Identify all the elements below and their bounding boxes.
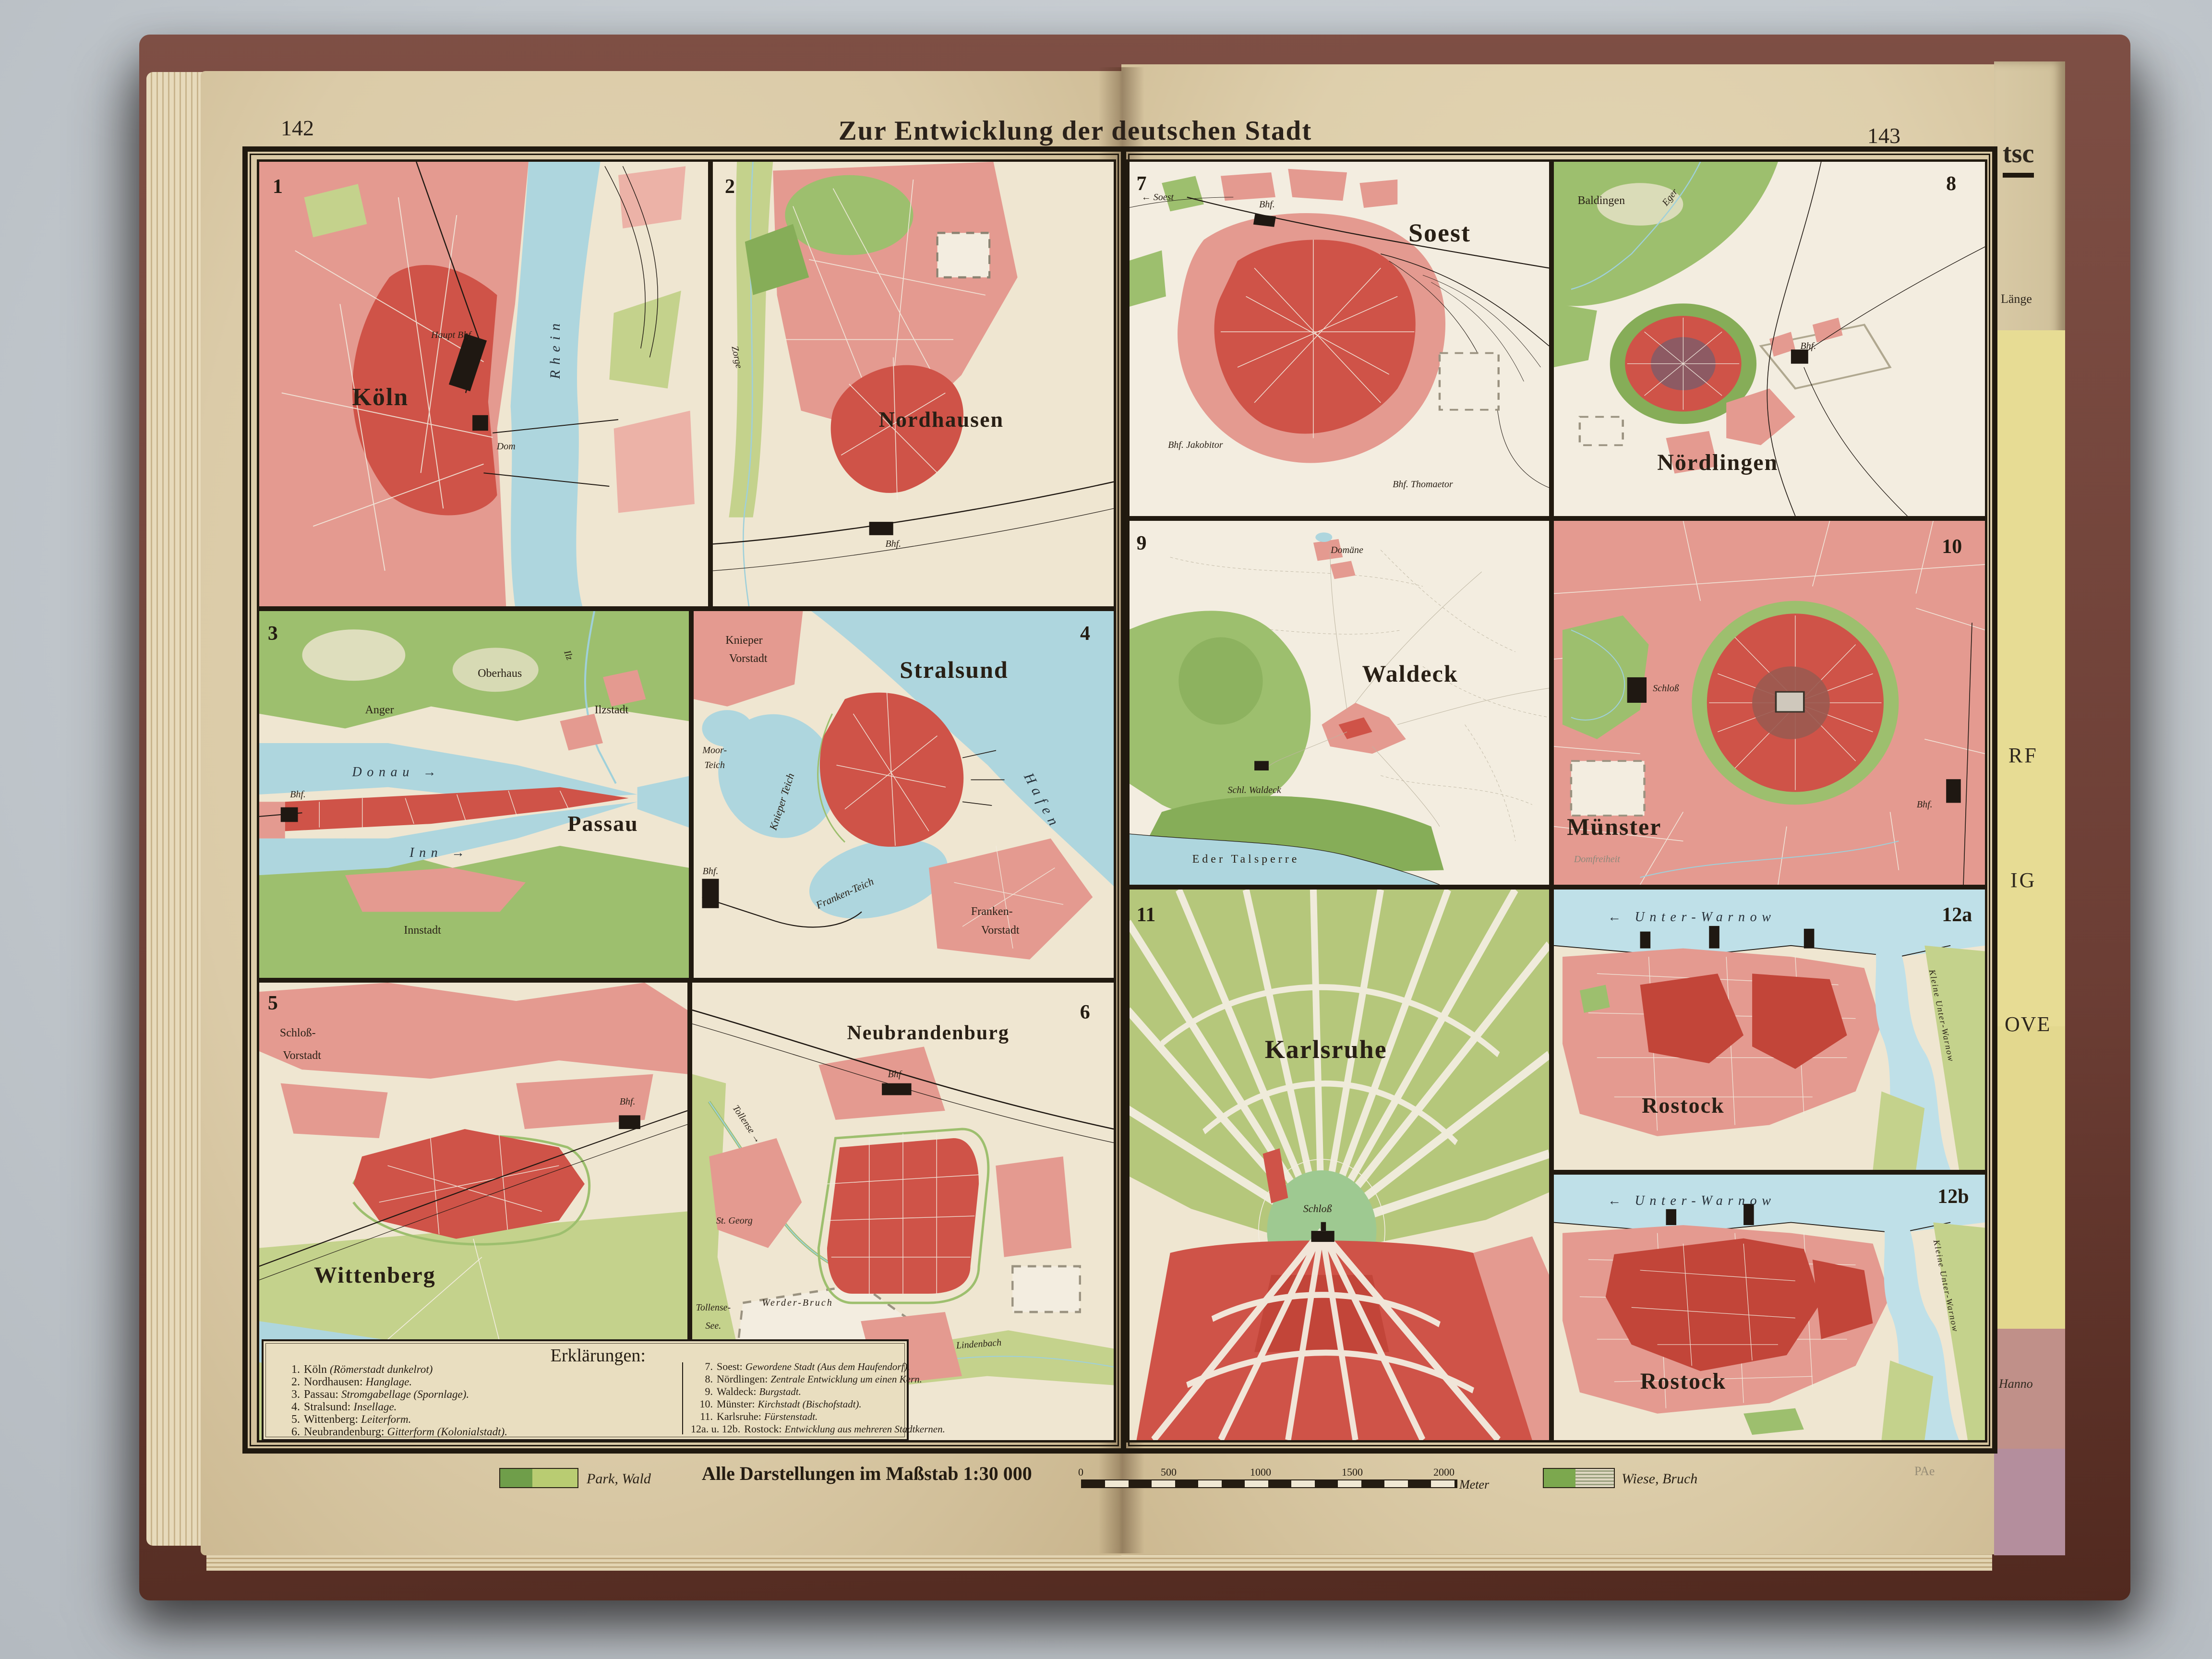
legend-item: 1.Köln(Römerstadt dunkelrot) (278, 1363, 507, 1376)
stralsund-bhf-label: Bhf. (703, 866, 719, 876)
panel-number: 2 (725, 175, 735, 198)
soest-map-art (1128, 162, 1549, 516)
legend-column-left: 1.Köln(Römerstadt dunkelrot) 2.Nordhause… (278, 1363, 507, 1438)
next-page-rf-fragment: RF (2008, 743, 2038, 768)
legend-item: 3.Passau:Stromgabellage (Spornlage). (278, 1388, 507, 1401)
donau-river-label: Donau → (352, 766, 442, 779)
panel-muenster: 10 Schloß Münster Domfreiheit Bhf. (1551, 518, 1987, 887)
anger-label: Anger (365, 704, 394, 716)
karlsruhe-city-label: Karlsruhe (1265, 1036, 1387, 1062)
legend-heading: Erklärungen: (551, 1345, 646, 1366)
panel-number: 1 (273, 175, 283, 198)
next-page-hanno-fragment: Hanno (1999, 1377, 2033, 1391)
passau-city-label: Passau (567, 813, 638, 835)
schloss-vorstadt-label-2: Vorstadt (283, 1050, 321, 1061)
panel-passau: 3 Oberhaus Anger Ilzstadt Ilz Donau → In… (257, 609, 691, 980)
panel-soest: 7 Soest ← Soest Bhf. Bhf. Thomaetor Bhf.… (1126, 159, 1551, 518)
scale-tick-1000: 1000 (1250, 1466, 1271, 1479)
panel-number: 5 (268, 992, 278, 1015)
stralsund-bahnhof-icon (702, 879, 719, 908)
scale-bar (1081, 1479, 1457, 1488)
page-number-right: 143 (1867, 123, 1900, 148)
page-title: Zur Entwicklung der deutschen Stadt (797, 115, 1354, 146)
next-page-ove-fragment: OVE (2005, 1012, 2051, 1036)
printer-mark: PAe (1914, 1464, 1935, 1479)
inn-river-label: Inn → (409, 846, 470, 860)
noerdlingen-bhf-label: Bhf. (1800, 341, 1816, 351)
legend-divider (682, 1362, 683, 1434)
panel-number: 9 (1137, 532, 1147, 555)
nordhausen-bahnhof-icon (869, 522, 893, 535)
scale-tick-1500: 1500 (1342, 1466, 1363, 1479)
knieper-vorstadt-label-1: Knieper (725, 635, 762, 646)
bhf-thomaetor-label: Bhf. Thomaetor (1393, 480, 1453, 489)
wiese-bruch-swatch (1543, 1468, 1615, 1488)
franken-vorstadt-label-2: Vorstadt (981, 925, 1020, 936)
moor-teich-label-2: Teich (704, 760, 725, 770)
panel-number: 3 (268, 622, 278, 645)
park-swatch-dark-cell (500, 1469, 532, 1487)
muenster-schloss-label: Schloß (1653, 684, 1679, 693)
neubrandenburg-city-label: Neubrandenburg (847, 1023, 1009, 1043)
waldeck-city-label: Waldeck (1362, 661, 1458, 685)
oberhaus-label: Oberhaus (478, 668, 522, 679)
innstadt-label: Innstadt (404, 925, 441, 936)
stralsund-city-label: Stralsund (900, 658, 1008, 682)
schloss-vorstadt-label-1: Schloß- (280, 1027, 316, 1039)
muenster-dom-icon (1776, 692, 1803, 712)
domaene-label: Domäne (1331, 545, 1363, 555)
legend-item: 4.Stralsund:Insellage. (278, 1401, 507, 1413)
rostock-city-label-12b: Rostock (1640, 1370, 1726, 1393)
page-edge-stack-bottom (206, 1554, 1992, 1571)
soest-bhf-label: Bhf. (1259, 200, 1275, 209)
muenster-schloss-icon (1627, 677, 1647, 703)
noerdlingen-bahnhof-icon (1791, 349, 1808, 364)
ilzstadt-label: Ilzstadt (595, 704, 629, 716)
park-swatch-light-cell (532, 1469, 577, 1487)
tollense-see-label-2: See. (706, 1321, 721, 1331)
franken-vorstadt-label-1: Franken- (971, 906, 1013, 917)
moor-teich-label-1: Moor- (702, 745, 727, 755)
nordhausen-city-label: Nordhausen (879, 409, 1004, 431)
next-page-laenge-fragment: Länge (2001, 292, 2032, 306)
koeln-dom-icon (472, 415, 488, 431)
next-page-ig-fragment: IG (2010, 868, 2036, 892)
koeln-hauptbhf-label: Haupt Bhf. (431, 330, 473, 340)
page-edge-stack-left (146, 72, 203, 1546)
scale-tick-2000: 2000 (1433, 1466, 1455, 1479)
koeln-dom-label: Dom (497, 442, 516, 451)
karlsruhe-schloss-tower-icon (1321, 1222, 1326, 1231)
waldeck-map-art (1128, 521, 1549, 885)
baldingen-label: Baldingen (1577, 195, 1625, 206)
legend-column-right: 7.Soest:Gewordene Stadt (Aus dem Haufend… (691, 1360, 945, 1435)
muenster-bahnhof-icon (1946, 779, 1961, 803)
schloss-waldeck-icon (1254, 761, 1269, 770)
passau-map-art (259, 611, 689, 978)
koeln-map-art (259, 162, 708, 606)
next-page-sliver: tsc Länge RF IG OVE Hanno (1994, 61, 2065, 1555)
rostock-12a-map-art (1554, 890, 1985, 1170)
panel-number: 6 (1080, 1001, 1090, 1024)
rostock-city-label-12a: Rostock (1642, 1094, 1724, 1117)
wiese-swatch-green-cell (1544, 1469, 1575, 1487)
panel-number: 12b (1937, 1185, 1969, 1208)
nordhausen-bhf-label: Bhf. (885, 539, 901, 549)
rhein-river-label: Rhein (548, 318, 563, 379)
soest-city-label: Soest (1408, 220, 1471, 246)
bhf-jakobitor-label: Bhf. Jakobitor (1168, 440, 1223, 450)
wittenberg-city-label: Wittenberg (314, 1264, 436, 1287)
neubrandenburg-bhf-label: Bhf (888, 1070, 902, 1079)
scale-tick-500: 500 (1161, 1466, 1177, 1479)
panel-noerdlingen: 8 Baldingen Eger Bhf. Nördlingen (1551, 159, 1987, 518)
legend-item: 5.Wittenberg:Leiterform. (278, 1413, 507, 1426)
domfreiheit-label: Domfreiheit (1574, 854, 1620, 864)
photo-of-atlas: tsc Länge RF IG OVE Hanno 142 143 Zur En… (0, 0, 2212, 1659)
next-page-header-fragment: tsc (2003, 138, 2034, 178)
park-wald-label: Park, Wald (587, 1471, 651, 1487)
panel-number: 11 (1137, 903, 1156, 926)
eder-talsperre-label: Eder Talsperre (1192, 854, 1300, 865)
legend-item: 10.Münster:Kirchstadt (Bischofstadt). (691, 1398, 945, 1410)
muenster-bhf-label: Bhf. (1917, 800, 1933, 809)
karlsruhe-schloss-icon (1311, 1231, 1334, 1242)
park-wald-swatch (499, 1468, 578, 1488)
werder-bruch-label: Werder-Bruch (762, 1298, 833, 1308)
scale-unit-label: Meter (1459, 1478, 1489, 1492)
legend-box: Erklärungen: 1.Köln(Römerstadt dunkelrot… (262, 1339, 909, 1441)
karlsruhe-schloss-label: Schloß (1303, 1203, 1332, 1214)
unter-warnow-label-12b: ← Unter-Warnow (1608, 1194, 1776, 1208)
noerdlingen-city-label: Nördlingen (1657, 451, 1778, 474)
panel-stralsund: 4 Stralsund Knieper Vorstadt Moor- Teich… (691, 609, 1116, 980)
tollense-see-label-1: Tollense- (696, 1303, 731, 1312)
panel-number: 8 (1946, 172, 1956, 195)
passau-bhf-label: Bhf. (290, 790, 306, 799)
panel-rostock-12b: 12b ← Unter-Warnow Rostock Kleine Unter-… (1551, 1172, 1987, 1443)
panel-nordhausen: 2 Nordhausen Zorge Bhf. (710, 159, 1116, 609)
st-georg-label: St. Georg (716, 1216, 753, 1226)
neubrandenburg-bahnhof-icon (882, 1083, 911, 1095)
passau-bahnhof-icon (281, 807, 298, 822)
panel-number: 7 (1137, 172, 1147, 195)
legend-item: 12a. u. 12b.Rostock:Entwicklung aus mehr… (691, 1423, 945, 1435)
panel-number: 4 (1080, 622, 1090, 645)
panel-number: 12a (1942, 903, 1972, 926)
unter-warnow-label-12a: ← Unter-Warnow (1608, 911, 1776, 924)
koeln-city-label: Köln (352, 385, 409, 410)
legend-item: 2.Nordhausen:Hanglage. (278, 1376, 507, 1388)
panel-number: 10 (1942, 535, 1962, 558)
legend-item: 11.Karlsruhe:Fürstenstadt. (691, 1410, 945, 1423)
wittenberg-bhf-label: Bhf. (620, 1097, 636, 1106)
legend-item: 6.Neubrandenburg:Gitterform (Kolonialsta… (278, 1426, 507, 1438)
wittenberg-bahnhof-icon (619, 1115, 640, 1129)
legend-item: 9.Waldeck:Burgstadt. (691, 1385, 945, 1398)
scale-tick-0: 0 (1078, 1466, 1083, 1479)
panel-waldeck: 9 Domäne Waldeck Schl. Waldeck Eder Tals… (1126, 518, 1551, 887)
karlsruhe-map-art (1128, 890, 1549, 1440)
scale-statement: Alle Darstellungen im Maßstab 1:30 000 (702, 1462, 1032, 1485)
rostock-12b-map-art (1554, 1175, 1985, 1440)
wiese-swatch-hatch-cell (1575, 1469, 1614, 1487)
next-page-map-fragment (1994, 330, 2065, 1555)
schloss-waldeck-label: Schl. Waldeck (1227, 785, 1281, 795)
knieper-vorstadt-label-2: Vorstadt (729, 653, 768, 664)
legend-item: 7.Soest:Gewordene Stadt (Aus dem Haufend… (691, 1360, 945, 1373)
nordhausen-map-art (713, 162, 1114, 606)
muenster-city-label: Münster (1567, 815, 1661, 839)
wiese-bruch-label: Wiese, Bruch (1622, 1471, 1697, 1487)
panel-karlsruhe: 11 Karlsruhe Schloß (1126, 887, 1551, 1443)
panel-koeln: 1 Köln Haupt Bhf. Dom Rhein (257, 159, 710, 609)
page-number-left: 142 (281, 115, 314, 141)
legend-item: 8.Nördlingen:Zentrale Entwicklung um ein… (691, 1373, 945, 1385)
panel-rostock-12a: 12a ← Unter-Warnow Rostock Kleine Unter-… (1551, 887, 1987, 1172)
